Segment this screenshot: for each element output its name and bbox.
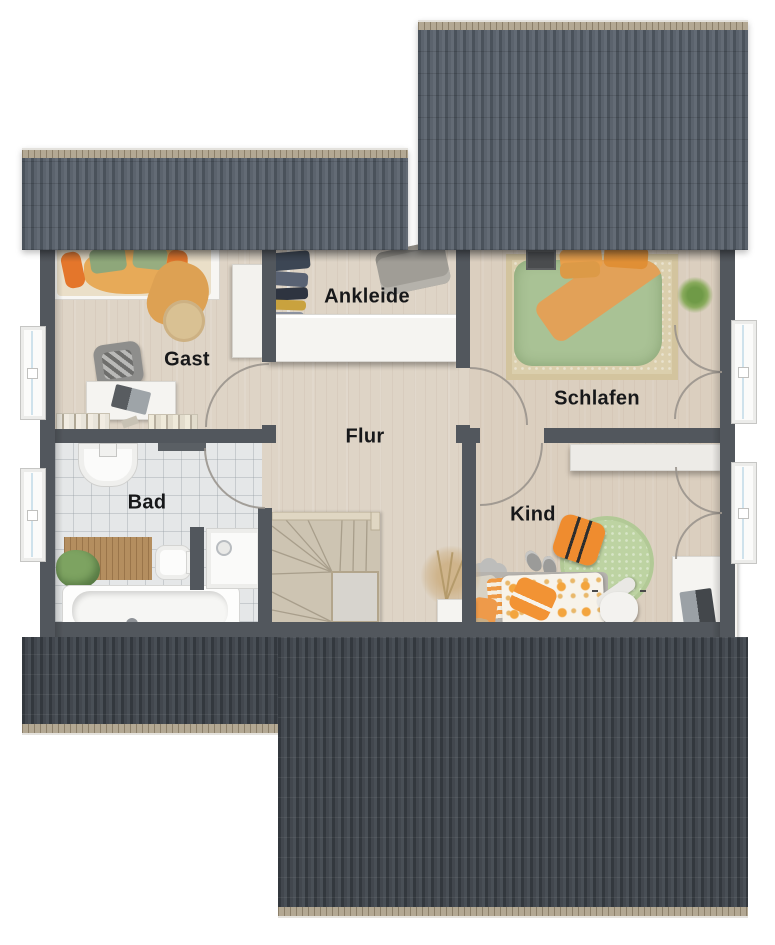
- room-label-kind: Kind: [510, 504, 556, 527]
- roof-bottom-right: [278, 637, 748, 918]
- roof-bottom-left: [22, 637, 278, 735]
- schlafen-door-arc: [470, 368, 527, 425]
- kind-window: [731, 462, 757, 564]
- schlafen-window: [731, 320, 757, 424]
- room-label-ankleide: Ankleide: [324, 286, 410, 309]
- bad-door-arc: [205, 448, 265, 508]
- gast-window: [20, 326, 46, 420]
- room-label-flur: Flur: [346, 426, 385, 449]
- bad-window: [20, 468, 46, 562]
- wall-shadow-left: [55, 248, 63, 637]
- wall-shadow-right: [712, 248, 720, 637]
- gast-door-arc: [206, 364, 269, 427]
- room-label-schlafen: Schlafen: [554, 388, 640, 411]
- room-label-gast: Gast: [164, 349, 210, 372]
- roof-top-left: [22, 148, 408, 250]
- kind-door-arc: [480, 443, 542, 505]
- roof-ridge-top-left: [22, 148, 408, 158]
- floor-plan: Gast Ankleide Schlafen Flur Bad Kind: [0, 0, 775, 945]
- room-label-bad: Bad: [128, 492, 167, 515]
- roof-eave-bottom-right: [278, 907, 748, 918]
- roof-top-right: [418, 20, 748, 250]
- roof-edge-shadow-top: [40, 250, 735, 262]
- roof-eave-bottom-left: [22, 724, 278, 735]
- roof-ridge-top-right: [418, 20, 748, 30]
